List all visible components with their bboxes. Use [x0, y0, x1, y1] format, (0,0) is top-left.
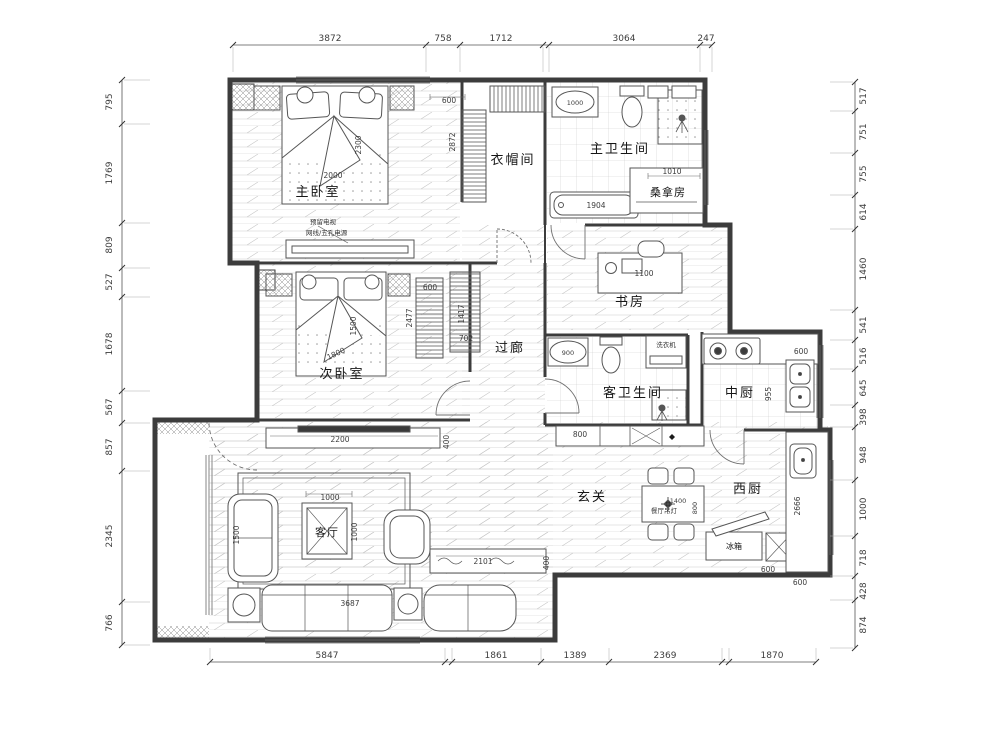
dim-table-1000-w: 1000: [320, 493, 339, 502]
chair: [648, 468, 668, 484]
dim-wardrobe-2477: 2477: [405, 308, 414, 327]
dim-dining-800: 800: [691, 502, 699, 514]
extension-lines: [124, 80, 150, 645]
dim-sofa-3687: 3687: [340, 599, 359, 608]
shower-head-icon: [679, 115, 685, 121]
right-dimension-chain: 517 751 755 614 1460 541 516 645 398 948…: [830, 79, 869, 651]
label-dining-pendant: 餐厅吊灯: [651, 506, 678, 515]
dim-tv-400: 400: [442, 435, 451, 450]
dim-top-4: 247: [697, 34, 714, 44]
dim-values: 517 751 755 614 1460 541 516 645 398 948…: [859, 87, 869, 633]
dim-cloak-600: 600: [442, 96, 457, 105]
dim-right-5: 541: [859, 316, 869, 333]
dim-wardrobe-600: 600: [423, 283, 438, 292]
dim-right-1: 751: [859, 123, 869, 140]
dim-top-1: 758: [434, 34, 451, 44]
headboard-lamp: [297, 87, 313, 103]
dim-top-2: 1712: [490, 34, 513, 44]
drain: [799, 373, 802, 376]
room-label-living-room: 客厅: [315, 525, 339, 539]
headboard-lamp: [359, 87, 375, 103]
dim-wardrobe-702: 702: [459, 334, 474, 343]
floor-plan-page: 主卧室 衣帽间 主卫生间 桑拿房 书房 次卧室 过廊 客卫生间 中厨 玄关 西厨…: [0, 0, 1000, 750]
dim-dining-1400: 1400: [670, 497, 687, 505]
room-label-cloakroom: 衣帽间: [490, 152, 535, 168]
sofa-main: [262, 585, 392, 631]
bay-window-strip: [157, 424, 209, 636]
dim-shoe-2101: 2101: [473, 557, 492, 566]
dim-right-4: 1460: [859, 257, 869, 280]
toilet-tank: [620, 86, 644, 96]
dim-top-0: 3872: [319, 34, 342, 44]
toilet-bowl: [622, 97, 642, 127]
shelf: [648, 86, 668, 98]
dim-desk-1100: 1100: [634, 269, 653, 278]
left-dimension-chain: 795 1769 809 527 1678 567 857 2345 766: [105, 77, 150, 648]
note-tv-reserved: 预留电视: [310, 217, 337, 226]
dim-right-7: 645: [859, 379, 869, 396]
shelf: [672, 86, 696, 98]
note-outlet: 网线/五孔电源: [306, 228, 348, 237]
dim-shoe-400: 400: [542, 556, 551, 571]
dim-right-3: 614: [859, 203, 869, 220]
room-label-second-bedroom: 次卧室: [319, 366, 364, 382]
extension-lines: [210, 648, 816, 660]
dim-right-10: 1000: [859, 497, 869, 520]
dim-sauna-1010: 1010: [662, 167, 681, 176]
dim-tub-1904: 1904: [586, 201, 605, 210]
nightstand: [254, 86, 280, 110]
tv-screen: [298, 426, 410, 432]
dim-top-3: 3064: [613, 34, 636, 44]
burner-center: [741, 348, 748, 355]
dim-counter-2666: 2666: [793, 496, 802, 515]
dim-right-12: 428: [859, 582, 869, 599]
dim-left-5: 567: [105, 398, 115, 415]
dim-right-9: 948: [859, 446, 869, 463]
chair: [648, 524, 668, 540]
room-label-western-kitchen: 西厨: [733, 482, 763, 497]
tub-drain: [559, 203, 564, 208]
extension-lines: [830, 82, 853, 648]
dim-basin-900: 900: [562, 349, 574, 357]
toilet-tank: [600, 337, 622, 345]
dim-values: 795 1769 809 527 1678 567 857 2345 766: [105, 93, 115, 631]
dim-wardrobe-1417: 1417: [457, 304, 466, 323]
burner-center: [715, 348, 722, 355]
dim-right-8: 398: [859, 408, 869, 425]
dim-bottom-0: 5847: [316, 651, 339, 661]
room-label-chinese-kitchen: 中厨: [725, 386, 755, 401]
dim-left-0: 795: [105, 93, 115, 110]
dim-entry-cab-600: 600: [761, 565, 776, 574]
dim-cloak-2872: 2872: [448, 132, 457, 151]
floor-plan-svg: 主卧室 衣帽间 主卫生间 桑拿房 书房 次卧室 过廊 客卫生间 中厨 玄关 西厨…: [0, 0, 1000, 750]
bay-hatch-top: [157, 422, 209, 434]
drain: [802, 459, 805, 462]
washer-panel: [650, 356, 682, 364]
label-washing-machine: 洗衣机: [656, 340, 676, 349]
pier-master: [232, 84, 254, 110]
dim-values: 5847 1861 1389 2369 1870: [316, 651, 784, 661]
dim-right-13: 874: [859, 616, 869, 633]
dim-bottom-2: 1389: [564, 651, 587, 661]
sofa-chaise: [424, 585, 516, 631]
armchair-cushion: [390, 516, 424, 558]
desk-chair: [638, 241, 664, 257]
dim-bottom-4: 1870: [761, 651, 784, 661]
dim-left-7: 2345: [105, 525, 115, 548]
dim-bottom-1: 1861: [485, 651, 508, 661]
dim-bath-tub-1000: 1000: [567, 99, 584, 107]
dim-left-8: 766: [105, 614, 115, 631]
dim-right-6: 516: [859, 347, 869, 364]
dim-master-bed-width: 2000: [323, 171, 342, 180]
dim-left-3: 527: [105, 273, 115, 290]
side-table-plant: [398, 594, 418, 614]
nightstand: [266, 274, 292, 296]
wardrobe-band: [462, 110, 486, 202]
dim-left-1: 1769: [105, 161, 115, 184]
headboard-lamp: [365, 275, 379, 289]
toilet-bowl: [602, 347, 620, 373]
dim-right-11: 718: [859, 549, 869, 566]
room-label-master-bedroom: 主卧室: [295, 184, 340, 200]
dim-kitchen-600: 600: [794, 347, 809, 356]
room-label-sauna: 桑拿房: [650, 185, 686, 199]
room-label-master-bathroom: 主卫生间: [590, 142, 650, 157]
hanger-rod: [490, 86, 545, 112]
dim-left-4: 1678: [105, 332, 115, 355]
dim-bed2-1500: 1500: [349, 316, 358, 335]
dim-bottom-3: 2369: [654, 651, 677, 661]
room-label-entrance: 玄关: [577, 490, 607, 505]
room-label-study: 书房: [615, 294, 645, 310]
chair: [674, 524, 694, 540]
headboard-lamp: [302, 275, 316, 289]
tv-cabinet-inner: [292, 246, 408, 253]
chair: [674, 468, 694, 484]
shower-head-icon: [659, 405, 665, 411]
cloakroom-wardrobes: [462, 86, 545, 202]
dim-tv-2200: 2200: [330, 435, 349, 444]
dim-right-0: 517: [859, 87, 869, 104]
extension-lines: [233, 47, 712, 72]
room-label-corridor: 过廊: [495, 340, 525, 356]
dim-left-6: 857: [105, 438, 115, 455]
label-fridge: 冰箱: [726, 541, 742, 551]
side-table-plant: [233, 594, 255, 616]
dim-sofa-1500: 1500: [232, 525, 241, 544]
dim-hall-800: 800: [573, 430, 588, 439]
bay-hatch-bottom: [157, 626, 209, 638]
dim-counter-600: 600: [793, 578, 808, 587]
top-dimension-chain: 3872 758 1712 3064 247: [230, 34, 715, 72]
nightstand: [390, 86, 414, 110]
dim-right-2: 755: [859, 165, 869, 182]
desk-lamp: [606, 263, 617, 274]
dim-master-bed-length: 2300: [354, 135, 363, 154]
nightstand: [388, 274, 410, 296]
dim-values: 3872 758 1712 3064 247: [319, 34, 715, 44]
dim-table-1000-h: 1000: [350, 522, 359, 541]
room-label-guest-bathroom: 客卫生间: [603, 385, 663, 401]
bottom-dimension-chain: 5847 1861 1389 2369 1870: [207, 648, 819, 665]
dim-left-2: 809: [105, 236, 115, 253]
dim-kitchen-955: 955: [764, 387, 773, 402]
drain: [799, 396, 802, 399]
